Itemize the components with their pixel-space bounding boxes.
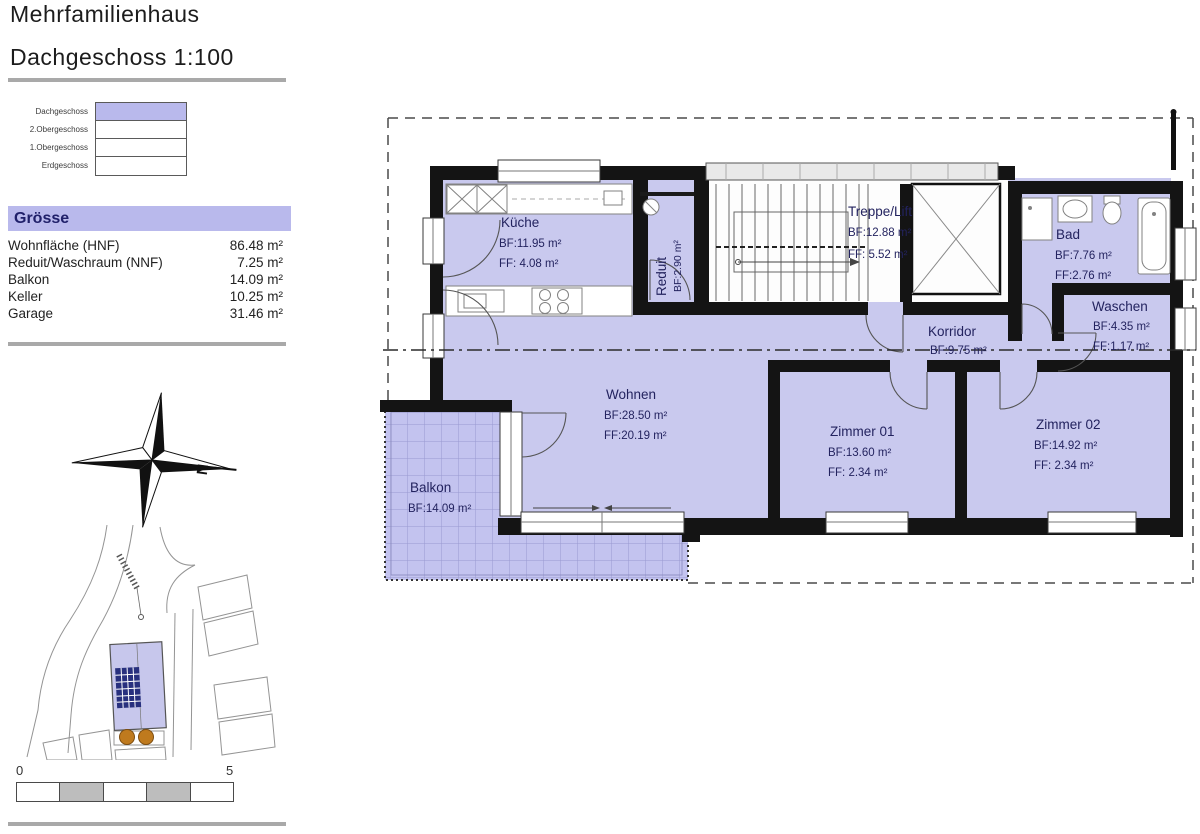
floor-label-2: 1.Obergeschoss: [0, 143, 88, 152]
room-label-treppe-ff: FF: 5.52 m²: [848, 249, 908, 261]
scale-bar: [16, 782, 234, 802]
size-row: Keller 10.25 m²: [8, 289, 284, 306]
room-label-kueche-ff: FF: 4.08 m²: [499, 258, 559, 270]
size-row: Reduit/Waschraum (NNF) 7.25 m²: [8, 255, 284, 272]
size-row-value: 86.48 m²: [230, 238, 283, 253]
size-row: Wohnfläche (HNF) 86.48 m²: [8, 238, 284, 255]
room-label-treppe-bf: BF:12.88 m²: [848, 227, 911, 239]
floor-plan: Küche BF:11.95 m² FF: 4.08 m² Reduit BF:…: [370, 95, 1200, 600]
floor-cell-3[interactable]: [95, 156, 187, 176]
room-label-wohnen-ff: FF:20.19 m²: [604, 430, 667, 442]
floor-label-1: 2.Obergeschoss: [0, 125, 88, 134]
floor-cell-0[interactable]: [95, 102, 187, 122]
size-row-value: 10.25 m²: [230, 289, 283, 304]
chimney-mark: [1171, 109, 1177, 170]
glazing-stairs: [706, 163, 998, 180]
scale-start: 0: [16, 763, 23, 778]
scale-end: 5: [226, 763, 233, 778]
site-path-hatch: [119, 555, 137, 588]
room-label-balkon-bf: BF:14.09 m²: [408, 503, 471, 515]
floor-label-0: Dachgeschoss: [0, 107, 88, 116]
size-row: Garage 31.46 m²: [8, 306, 284, 323]
shower-icon: [1022, 198, 1052, 240]
floorplan-page: Mehrfamilienhaus Dachgeschoss 1:100 Dach…: [0, 0, 1200, 834]
room-label-kueche-bf: BF:11.95 m²: [499, 238, 562, 250]
size-row-label: Balkon: [8, 272, 49, 287]
room-label-zimmer02-bf: BF:14.92 m²: [1034, 440, 1097, 452]
room-label-zimmer02-name: Zimmer 02: [1036, 417, 1101, 432]
size-row-value: 14.09 m²: [230, 272, 283, 287]
room-label-reduit-bf: BF:2.90 m²: [672, 240, 684, 292]
room-label-kueche-name: Küche: [501, 215, 539, 230]
room-label-bad-bf: BF:7.76 m²: [1055, 250, 1112, 262]
compass-rose: N: [65, 388, 240, 533]
page-subtitle: Dachgeschoss 1:100: [10, 44, 234, 71]
size-row-label: Reduit/Waschraum (NNF): [8, 255, 163, 270]
room-label-zimmer02-ff: FF: 2.34 m²: [1034, 460, 1094, 472]
room-label-treppe-name: Treppe/Lift: [848, 204, 912, 219]
divider-bottom: [8, 822, 286, 826]
page-title: Mehrfamilienhaus: [10, 1, 200, 28]
room-label-balkon-name: Balkon: [410, 480, 451, 495]
room-label-zimmer01-ff: FF: 2.34 m²: [828, 467, 888, 479]
room-label-korridor-name: Korridor: [928, 324, 977, 339]
room-label-zimmer01-name: Zimmer 01: [830, 424, 895, 439]
size-row-label: Wohnfläche (HNF): [8, 238, 120, 253]
divider-middle: [8, 342, 286, 346]
room-label-bad-ff: FF:2.76 m²: [1055, 270, 1111, 282]
room-label-wohnen-bf: BF:28.50 m²: [604, 410, 667, 422]
site-building: [110, 642, 166, 731]
tree: [139, 730, 154, 745]
divider-top: [8, 78, 286, 82]
size-panel-title: Grösse: [8, 206, 291, 231]
size-row-value: 7.25 m²: [237, 255, 283, 270]
room-label-waschen-ff: FF:1.17 m²: [1093, 341, 1149, 353]
tree: [120, 730, 135, 745]
size-row: Balkon 14.09 m²: [8, 272, 284, 289]
room-label-wohnen-name: Wohnen: [606, 387, 656, 402]
floor-label-3: Erdgeschoss: [0, 161, 88, 170]
room-label-zimmer01-bf: BF:13.60 m²: [828, 447, 891, 459]
room-label-bad-name: Bad: [1056, 227, 1080, 242]
room-label-waschen-name: Waschen: [1092, 299, 1148, 314]
floor-cell-1[interactable]: [95, 120, 187, 140]
size-row-label: Keller: [8, 289, 43, 304]
site-plan: [15, 525, 285, 760]
size-row-label: Garage: [8, 306, 53, 321]
north-label: N: [192, 463, 210, 476]
lift-shaft: [912, 184, 1000, 294]
room-label-reduit-name: Reduit: [654, 257, 669, 296]
roof-panels: [115, 667, 141, 708]
room-label-korridor-bf: BF:9.75 m²: [930, 345, 987, 357]
floor-cell-2[interactable]: [95, 138, 187, 158]
room-label-waschen-bf: BF:4.35 m²: [1093, 321, 1150, 333]
size-row-value: 31.46 m²: [230, 306, 283, 321]
